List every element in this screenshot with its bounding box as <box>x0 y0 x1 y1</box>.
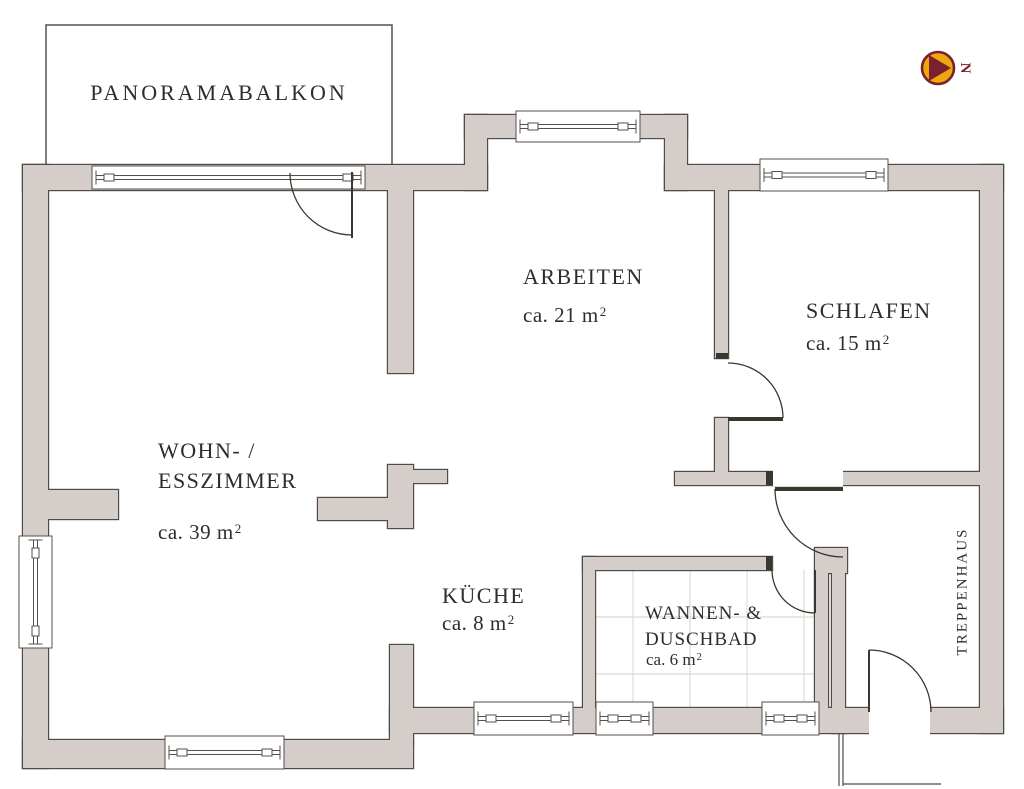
room-label-treppenhaus: TREPPENHAUS <box>955 517 972 667</box>
floor-plan: N PANORAMABALKON ARBEITEN ca. 21 m2 SCHL… <box>0 0 1024 789</box>
door-apartment-arc <box>775 489 843 557</box>
window-arbeiten-bay <box>516 111 640 142</box>
compass-north: N <box>922 52 973 84</box>
room-area-bad: ca. 6 m2 <box>646 650 702 670</box>
room-label-wohn-line2: ESSZIMMER <box>158 466 297 496</box>
window-kueche <box>474 702 573 735</box>
compass-north-letter: N <box>957 63 973 74</box>
wall-openings <box>773 470 930 735</box>
room-label-panoramabalkon: PANORAMABALKON <box>46 80 392 106</box>
room-area-arbeiten: ca. 21 m2 <box>523 303 607 328</box>
door-entrance-arc <box>869 650 931 712</box>
room-label-wohn-esszimmer: WOHN- / ESSZIMMER <box>158 436 297 496</box>
room-label-bad: WANNEN- & DUSCHBAD <box>645 601 762 653</box>
room-label-bad-line1: WANNEN- & <box>645 601 762 627</box>
window-balcony <box>92 166 365 189</box>
exterior-stair-marks <box>839 733 941 786</box>
room-area-schlafen: ca. 15 m2 <box>806 331 890 356</box>
room-label-schlafen: SCHLAFEN <box>806 298 932 324</box>
room-area-kueche: ca. 8 m2 <box>442 611 515 636</box>
window-wohnzimmer-left <box>19 536 52 648</box>
door-schlafen-arc <box>728 363 783 418</box>
room-area-wohn-esszimmer: ca. 39 m2 <box>158 520 242 545</box>
door-bad-arc <box>772 570 815 613</box>
window-wohnzimmer-bottom <box>165 736 284 769</box>
floor-plan-canvas: N <box>0 0 1024 789</box>
room-label-kueche: KÜCHE <box>442 583 525 609</box>
room-label-wohn-line1: WOHN- / <box>158 436 297 466</box>
room-label-arbeiten: ARBEITEN <box>523 264 644 290</box>
window-bad-left <box>596 702 653 735</box>
windows <box>19 111 888 769</box>
window-bad-right <box>762 702 819 735</box>
window-schlafen <box>760 159 888 191</box>
